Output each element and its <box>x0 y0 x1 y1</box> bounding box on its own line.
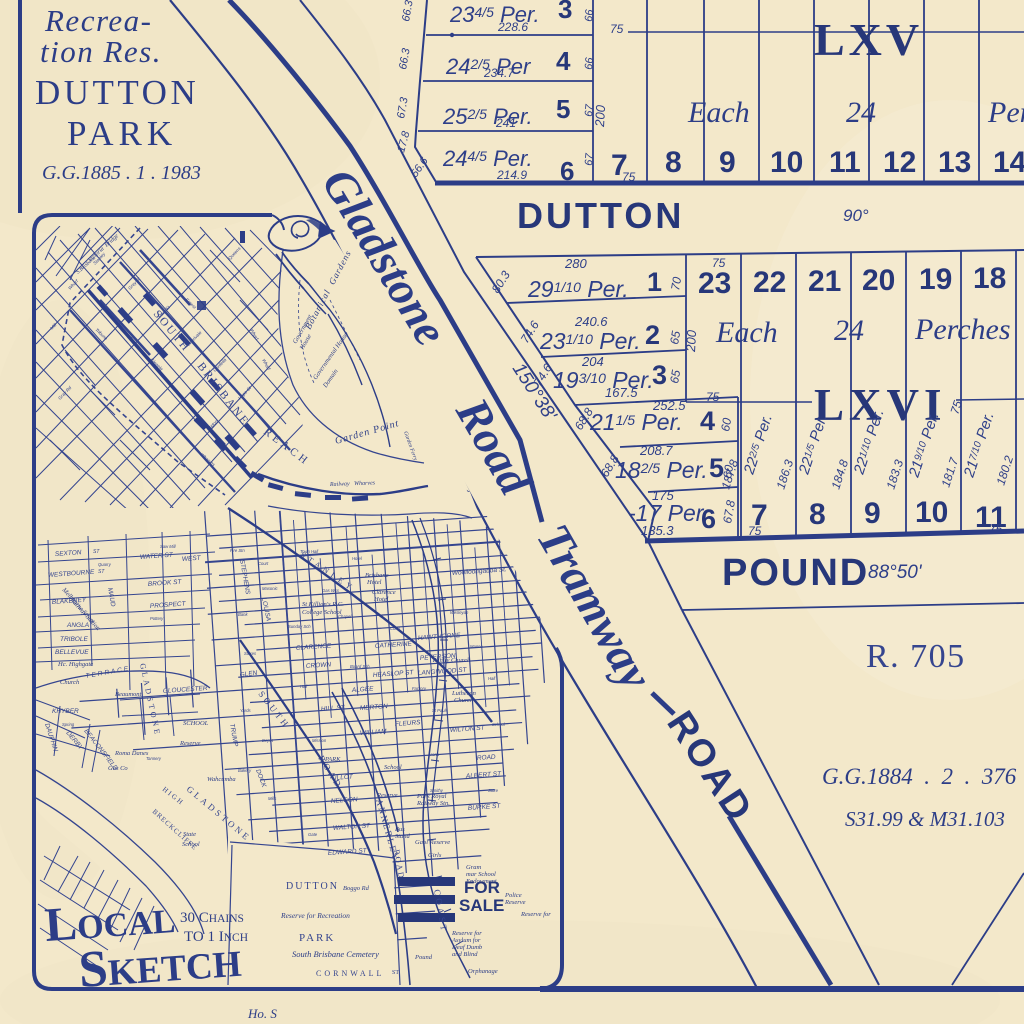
svg-text:Gate: Gate <box>308 832 318 837</box>
svg-text:State: State <box>183 831 196 838</box>
svg-text:228.6: 228.6 <box>497 20 528 34</box>
svg-text:1: 1 <box>647 267 662 297</box>
svg-text:18: 18 <box>973 262 1006 295</box>
svg-text:PARK: PARK <box>324 756 341 763</box>
svg-text:Bank: Bank <box>238 612 248 617</box>
svg-text:Store: Store <box>488 788 499 793</box>
svg-text:Wesleyan: Wesleyan <box>450 610 469 615</box>
svg-text:4: 4 <box>700 406 715 436</box>
svg-text:R. 705: R. 705 <box>866 638 966 675</box>
svg-text:PARK: PARK <box>67 114 177 153</box>
svg-text:Arena: Arena <box>427 752 440 757</box>
svg-text:9: 9 <box>719 146 736 179</box>
svg-text:252/5 Per.: 252/5 Per. <box>442 104 533 129</box>
svg-text:Wahcumba: Wahcumba <box>207 776 236 783</box>
svg-text:90°: 90° <box>843 206 869 225</box>
svg-text:Saw Mill: Saw Mill <box>160 544 177 549</box>
svg-text:Depot: Depot <box>262 738 274 743</box>
svg-text:ST: ST <box>98 569 105 575</box>
svg-text:Deaf Dumb: Deaf Dumb <box>451 944 483 951</box>
svg-text:Sunday Sch: Sunday Sch <box>288 624 311 629</box>
svg-text:Each: Each <box>715 316 778 349</box>
svg-text:G.G.1885 . 1 . 1983: G.G.1885 . 1 . 1983 <box>42 162 201 184</box>
svg-text:BELLEVUE: BELLEVUE <box>55 649 89 656</box>
svg-text:67: 67 <box>583 152 596 166</box>
svg-text:Town Hall: Town Hall <box>300 549 319 554</box>
svg-text:24: 24 <box>834 314 864 347</box>
svg-text:66: 66 <box>583 8 596 22</box>
svg-text:Hotel: Hotel <box>373 596 389 603</box>
svg-text:200: 200 <box>683 329 699 353</box>
svg-text:Conv: Conv <box>390 626 401 631</box>
svg-text:88°50': 88°50' <box>868 562 923 583</box>
svg-text:13: 13 <box>938 146 971 179</box>
svg-text:tion Res.: tion Res. <box>40 34 162 69</box>
svg-text:Roma Danes: Roma Danes <box>114 750 149 757</box>
svg-text:3: 3 <box>652 360 667 390</box>
svg-text:Each: Each <box>687 96 750 129</box>
svg-text:167.5: 167.5 <box>605 385 638 400</box>
svg-text:DUTTON: DUTTON <box>35 73 199 112</box>
svg-text:PARK: PARK <box>299 932 335 944</box>
svg-text:8: 8 <box>665 146 682 179</box>
svg-text:Hall: Hall <box>300 684 308 689</box>
svg-text:Pottery: Pottery <box>150 616 164 621</box>
svg-text:School: School <box>492 722 506 727</box>
svg-text:2: 2 <box>645 320 660 350</box>
svg-text:Fire Stn: Fire Stn <box>230 548 245 553</box>
svg-text:Railway Stn.: Railway Stn. <box>416 800 450 807</box>
svg-text:Reserve: Reserve <box>504 899 526 906</box>
svg-text:St Killian's R.C.: St Killian's R.C. <box>302 601 344 608</box>
svg-text:22: 22 <box>753 266 786 299</box>
svg-text:POUND: POUND <box>722 552 869 594</box>
svg-text:3: 3 <box>558 0 572 24</box>
svg-text:204: 204 <box>581 354 604 369</box>
svg-text:12: 12 <box>883 146 916 179</box>
svg-text:135.3: 135.3 <box>641 523 674 538</box>
svg-text:60: 60 <box>718 417 734 433</box>
svg-text:TRIBOLE: TRIBOLE <box>60 636 88 643</box>
svg-text:South Brisbane Cemetery: South Brisbane Cemetery <box>292 949 379 959</box>
svg-text:70: 70 <box>668 276 684 292</box>
svg-text:24: 24 <box>846 96 876 129</box>
svg-text:214.9: 214.9 <box>496 168 527 182</box>
svg-text:Pound: Pound <box>414 954 433 961</box>
svg-text:Chapel: Chapel <box>338 614 352 619</box>
svg-text:School: School <box>182 841 200 848</box>
svg-text:Factory: Factory <box>412 686 427 691</box>
svg-text:WEST: WEST <box>182 555 202 563</box>
svg-text:Mills: Mills <box>268 796 277 801</box>
svg-text:Manse: Manse <box>470 644 483 649</box>
svg-text:DUTTON: DUTTON <box>517 195 684 236</box>
svg-text:182/5 Per.: 182/5 Per. <box>615 457 708 483</box>
svg-text:10: 10 <box>915 496 948 529</box>
svg-text:School: School <box>384 764 402 771</box>
svg-text:Clarence: Clarence <box>372 589 396 596</box>
svg-text:Gas Co: Gas Co <box>108 765 128 772</box>
svg-text:ANGLA: ANGLA <box>66 622 89 629</box>
svg-text:65: 65 <box>667 330 683 346</box>
svg-text:19: 19 <box>919 263 952 296</box>
svg-text:SALE: SALE <box>459 896 504 915</box>
svg-text:Yards: Yards <box>240 708 252 713</box>
svg-text:Boggo Rd: Boggo Rd <box>343 885 370 892</box>
svg-text:280: 280 <box>564 256 587 271</box>
svg-text:Board Sch: Board Sch <box>350 664 370 669</box>
svg-text:ST: ST <box>93 549 100 555</box>
svg-text:Gram: Gram <box>466 864 481 871</box>
svg-text:St Pauls: St Pauls <box>432 708 449 713</box>
svg-text:Lutheran: Lutheran <box>451 690 476 697</box>
svg-text:21: 21 <box>808 265 841 298</box>
svg-text:SCHOOL: SCHOOL <box>183 720 209 727</box>
svg-text:Church: Church <box>60 679 79 686</box>
svg-text:ROAD: ROAD <box>477 754 497 762</box>
svg-text:Church: Church <box>454 697 473 704</box>
svg-text:Hc. Highgate: Hc. Highgate <box>57 661 93 668</box>
svg-text:234.7: 234.7 <box>483 66 515 80</box>
svg-text:Gas Wks: Gas Wks <box>322 588 340 593</box>
svg-text:LXV: LXV <box>814 14 923 65</box>
svg-text:FOR: FOR <box>464 878 500 897</box>
svg-text:5: 5 <box>556 94 570 124</box>
svg-text:8: 8 <box>809 498 826 531</box>
svg-text:Trinity Church: Trinity Church <box>432 657 470 664</box>
svg-text:Bus: Bus <box>395 826 405 833</box>
svg-text:240.6: 240.6 <box>574 314 608 329</box>
svg-text:75: 75 <box>610 22 624 36</box>
svg-text:Bakery: Bakery <box>238 768 252 773</box>
svg-text:Spring: Spring <box>62 722 75 727</box>
svg-text:Reserve for Recreation: Reserve for Recreation <box>280 911 350 920</box>
svg-text:and Blind: and Blind <box>452 951 478 958</box>
svg-text:4: 4 <box>556 46 571 76</box>
svg-text:75: 75 <box>712 256 726 270</box>
svg-text:Stand: Stand <box>395 833 411 840</box>
svg-text:20: 20 <box>862 264 895 297</box>
svg-text:Perches: Perches <box>914 313 1011 346</box>
svg-text:DUTTON: DUTTON <box>286 881 339 892</box>
svg-text:65: 65 <box>667 369 683 385</box>
svg-text:14: 14 <box>993 146 1024 179</box>
svg-text:Quarry: Quarry <box>98 562 112 567</box>
svg-text:241: 241 <box>495 116 516 130</box>
svg-text:mar School: mar School <box>466 871 496 878</box>
svg-text:Mission: Mission <box>312 738 327 743</box>
svg-text:Per: Per <box>987 96 1024 129</box>
svg-text:S31.99 & M31.103: S31.99 & M31.103 <box>845 807 1005 831</box>
svg-text:Reserve for: Reserve for <box>451 930 482 937</box>
svg-text:Masonic: Masonic <box>262 586 278 591</box>
svg-text:Park Royal: Park Royal <box>416 793 447 800</box>
svg-text:Hotel: Hotel <box>352 556 363 561</box>
svg-text:ST: ST <box>392 970 399 976</box>
svg-text:Reserve: Reserve <box>179 740 201 747</box>
svg-text:Girls: Girls <box>428 852 442 859</box>
svg-text:9: 9 <box>864 497 881 530</box>
svg-text:Tannery: Tannery <box>146 756 162 761</box>
svg-text:208.7: 208.7 <box>639 443 673 458</box>
svg-text:Smithy: Smithy <box>430 788 444 793</box>
svg-text:75: 75 <box>706 390 720 404</box>
svg-text:Stores: Stores <box>244 651 257 656</box>
svg-text:TO 1 INCH: TO 1 INCH <box>184 929 248 945</box>
svg-text:30 CHAINS: 30 CHAINS <box>180 910 244 926</box>
svg-text:Gaol Reserve: Gaol Reserve <box>415 839 450 846</box>
svg-text:11: 11 <box>829 146 861 179</box>
svg-text:23: 23 <box>698 267 731 300</box>
svg-text:6: 6 <box>701 504 716 534</box>
svg-text:Police: Police <box>504 892 522 899</box>
svg-text:G.G.1884 . 2 . 376: G.G.1884 . 2 . 376 <box>822 764 1017 789</box>
svg-text:Brisbane: Brisbane <box>365 572 389 579</box>
svg-text:Hall: Hall <box>488 676 496 681</box>
svg-text:Recrea-: Recrea- <box>44 3 152 38</box>
svg-text:10: 10 <box>770 146 803 179</box>
svg-text:211/5 Per.: 211/5 Per. <box>589 409 683 435</box>
svg-text:Reserve: Reserve <box>376 792 398 799</box>
svg-text:KHYBER: KHYBER <box>52 708 79 715</box>
svg-text:Orphanage: Orphanage <box>468 968 498 975</box>
svg-text:College School: College School <box>302 609 342 616</box>
svg-text:Asylum for: Asylum for <box>451 937 481 944</box>
svg-text:66: 66 <box>583 56 596 70</box>
svg-text:Beaumont: Beaumont <box>115 691 142 698</box>
svg-text:CORNWALL: CORNWALL <box>316 969 384 978</box>
svg-text:Court: Court <box>258 561 269 566</box>
svg-text:Reserve for: Reserve for <box>520 911 551 918</box>
svg-text:Ho. S: Ho. S <box>247 1006 277 1021</box>
svg-text:200: 200 <box>592 104 608 128</box>
svg-text:Hotel: Hotel <box>366 579 382 586</box>
